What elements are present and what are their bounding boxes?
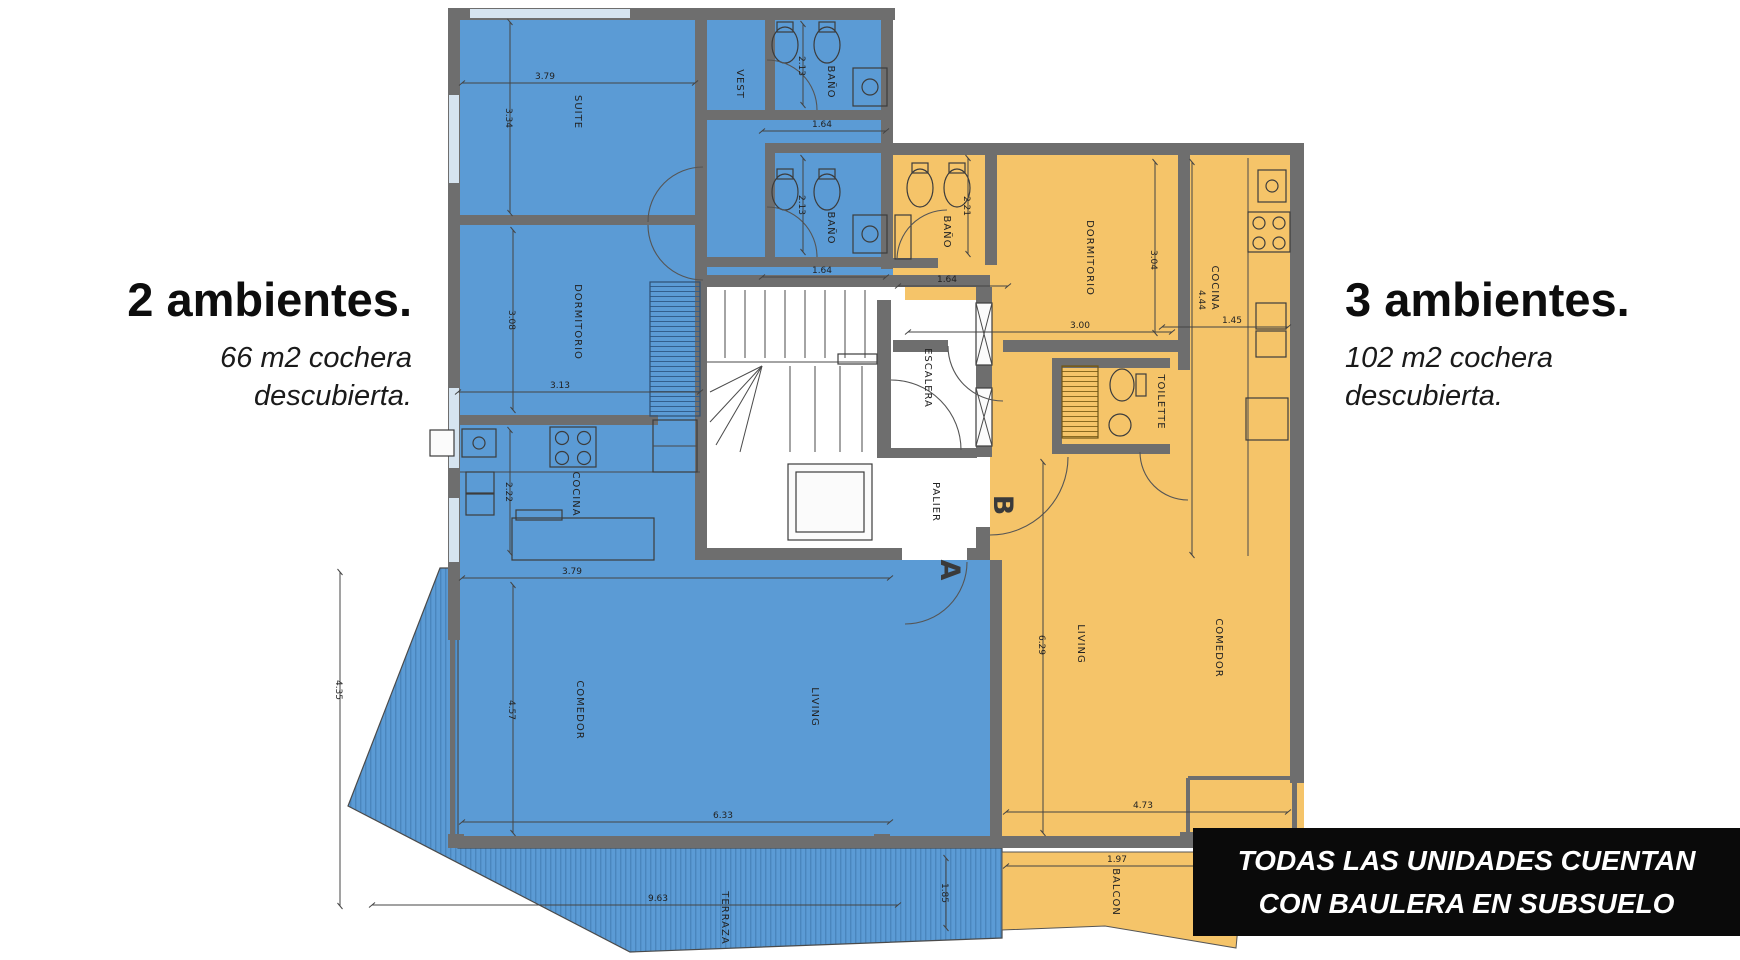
- dim-cocina-height: 2.22: [503, 482, 513, 502]
- dim-orange-dorm-height: 3.04: [1148, 250, 1158, 270]
- flyer-page: 3.79 3.34 2.13 1.64 2.13 1.64 2.21 1.64 …: [0, 0, 1740, 960]
- baulera-banner: TODAS LAS UNIDADES CUENTAN CON BAULERA E…: [1193, 828, 1740, 936]
- dim-terraza-width: 9.63: [648, 894, 668, 904]
- room-label-orange-cocina: COCINA: [1209, 265, 1220, 310]
- dim-orange-cocina-width: 1.45: [1222, 316, 1242, 326]
- window-icon: [449, 498, 459, 562]
- wall-post: [448, 834, 464, 848]
- unit-b-letter: B: [987, 495, 1018, 516]
- banner-line1: TODAS LAS UNIDADES CUENTAN: [1238, 839, 1696, 882]
- room-label-bano1: BAÑO: [825, 65, 838, 98]
- dim-bano2-width: 1.64: [812, 266, 832, 276]
- dim-terraza-height: 4.35: [333, 680, 343, 700]
- room-label-suite: SUITE: [572, 95, 583, 129]
- banner-line2: CON BAULERA EN SUBSUELO: [1259, 882, 1675, 925]
- room-label-living: LIVING: [809, 687, 820, 727]
- dim-bano1-height: 2.13: [796, 56, 806, 76]
- dim-dorm-width: 3.13: [550, 381, 570, 391]
- room-label-dormitorio: DORMITORIO: [572, 284, 583, 360]
- dim-orange-dorm-width: 3.00: [1070, 321, 1090, 331]
- room-label-orange-living: LIVING: [1075, 624, 1086, 664]
- unit-2-subtitle-line2: descubierta.: [40, 377, 412, 415]
- window-icon: [449, 95, 459, 183]
- unit-2-subtitle-line1: 66 m2 cochera: [40, 339, 412, 377]
- unit-3-info-panel: 3 ambientes. 102 m2 cochera descubierta.: [1345, 272, 1735, 416]
- room-label-balcon: BALCON: [1110, 868, 1121, 916]
- dim-orange-bano-height: 2.21: [961, 196, 971, 216]
- dim-dorm-height: 3.08: [506, 310, 516, 330]
- dim-balcon-width: 1.97: [1107, 855, 1127, 865]
- room-label-cocina: COCINA: [570, 471, 581, 516]
- dim-cocina-width: 3.79: [562, 567, 582, 577]
- vent-box-icon: [430, 430, 454, 456]
- unit-2-info-panel: 2 ambientes. 66 m2 cochera descubierta.: [40, 272, 412, 416]
- dim-suite-width: 3.79: [535, 72, 555, 82]
- window-icon: [470, 9, 630, 18]
- wardrobe-icon: [650, 282, 700, 416]
- dim-living-width: 6.33: [713, 811, 733, 821]
- unit-3-subtitle-line2: descubierta.: [1345, 377, 1735, 415]
- room-label-bano2: BAÑO: [825, 211, 838, 244]
- unit-2-title: 2 ambientes.: [40, 272, 412, 327]
- room-label-orange-dormitorio: DORMITORIO: [1084, 220, 1095, 296]
- dim-orange-cocina-height: 4.44: [1196, 290, 1206, 310]
- floor-plan: 3.79 3.34 2.13 1.64 2.13 1.64 2.21 1.64 …: [0, 0, 1740, 960]
- unit-2-subtitle: 66 m2 cochera descubierta.: [40, 339, 412, 416]
- dim-suite-height: 3.34: [503, 108, 513, 128]
- elevator-icon: [788, 464, 872, 540]
- dim-orange-living-height: 6.29: [1036, 635, 1046, 655]
- unit-a-letter: A: [934, 560, 965, 581]
- room-label-toilette: TOILETTE: [1155, 373, 1166, 429]
- room-label-orange-comedor: COMEDOR: [1213, 618, 1224, 677]
- wall-post: [874, 834, 890, 848]
- dim-bano1-width: 1.64: [812, 120, 832, 130]
- dim-bano2-height: 2.13: [796, 195, 806, 215]
- unit-3-subtitle: 102 m2 cochera descubierta.: [1345, 339, 1735, 416]
- room-label-vest: VEST: [734, 69, 745, 99]
- room-label-terraza: TERRAZA: [719, 890, 730, 944]
- room-label-escalera: ESCALERA: [922, 348, 933, 408]
- unit-3-subtitle-line1: 102 m2 cochera: [1345, 339, 1735, 377]
- room-label-comedor: COMEDOR: [574, 680, 585, 739]
- dim-comedor-height: 4.57: [506, 700, 516, 720]
- room-label-palier: PALIER: [930, 482, 941, 522]
- room-label-orange-bano: BAÑO: [941, 215, 954, 248]
- dim-orange-living-width: 4.73: [1133, 801, 1153, 811]
- dim-terraza-edge: 1.85: [939, 883, 949, 903]
- unit-3-title: 3 ambientes.: [1345, 272, 1735, 327]
- closet-icon: [1062, 366, 1098, 438]
- dim-orange-bano-width: 1.64: [937, 275, 957, 285]
